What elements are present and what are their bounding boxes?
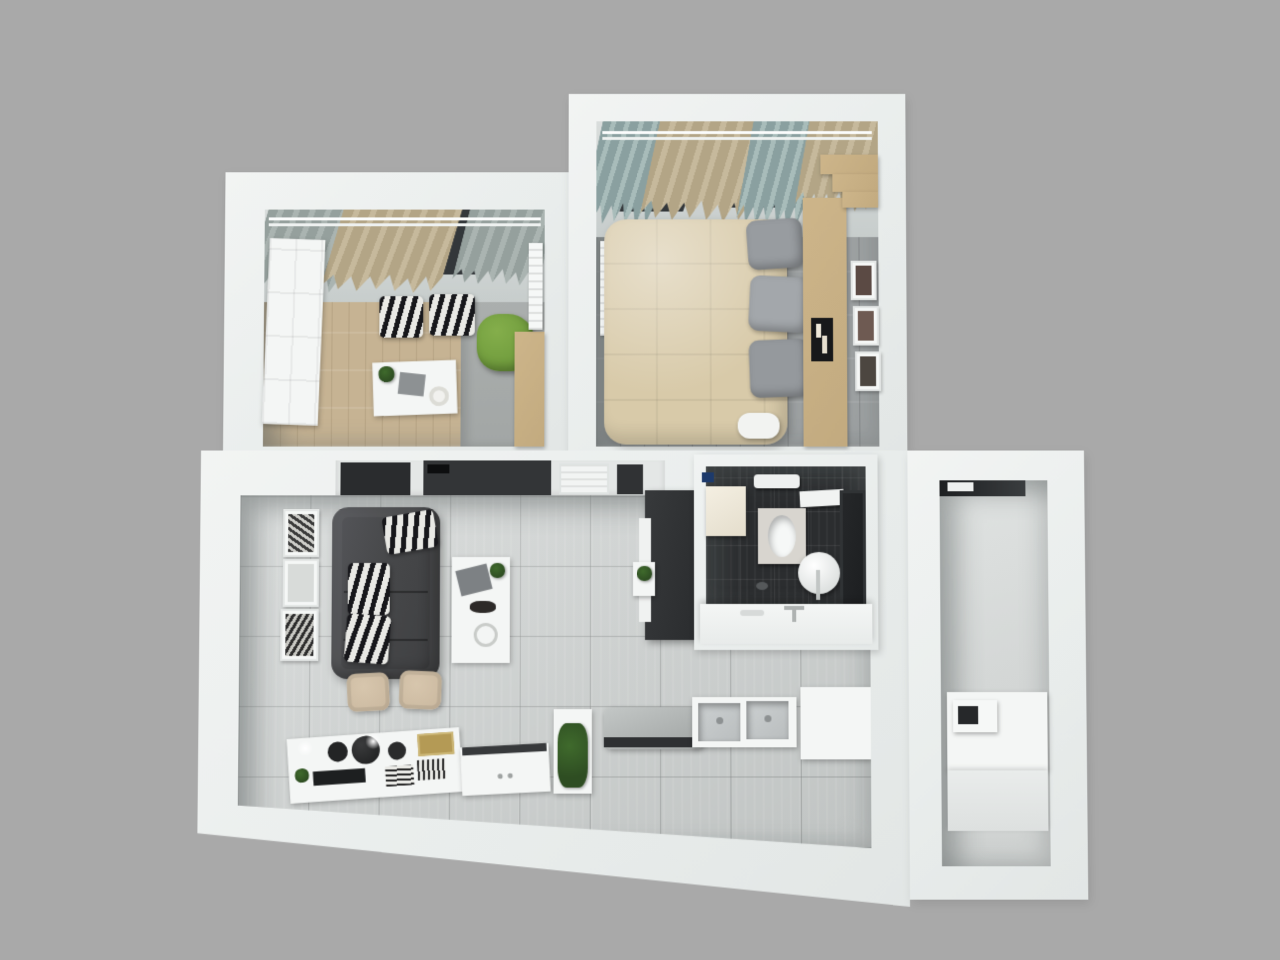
cooktop-dark-base (604, 737, 704, 747)
gold-decor-board (417, 732, 455, 757)
air-vent (559, 463, 609, 494)
picture-frame (851, 261, 877, 300)
bathroom-block (694, 455, 879, 650)
picture-frame (283, 509, 319, 557)
sofa (331, 507, 440, 679)
gray-pillow (748, 275, 810, 333)
counter-plant (558, 723, 588, 787)
toilet-base (758, 508, 806, 564)
gray-pillow (748, 339, 810, 398)
white-pillow (738, 413, 780, 439)
balcony-step (947, 770, 1048, 830)
tv-panel-wall (335, 460, 665, 498)
stepped-wardrobe (842, 192, 878, 208)
dining-chair (346, 672, 390, 712)
apartment-scene (0, 8, 1280, 960)
dark-tray (313, 768, 366, 786)
picture-frame (853, 306, 879, 345)
bedroom-block (568, 94, 907, 456)
shelf-plant (637, 566, 652, 581)
picture-frame (283, 559, 319, 607)
cup (474, 623, 498, 647)
floor-drain (756, 582, 768, 590)
soap-tray (740, 610, 764, 616)
vanity-counter (700, 604, 872, 644)
drain-tray (460, 743, 551, 796)
candle (816, 324, 821, 338)
blue-box (702, 472, 714, 482)
open-door-leaf (262, 238, 326, 425)
study-room-floor (263, 210, 545, 447)
drain-hole (498, 774, 503, 779)
sink-unit (692, 697, 796, 747)
balcony-floor (939, 480, 1050, 866)
living-block (197, 451, 910, 907)
curtain-rail (602, 131, 871, 134)
dark-wall-panel (340, 462, 410, 496)
balcony-counter (947, 692, 1048, 770)
black-bowl (387, 741, 406, 760)
zebra-cushion (344, 613, 392, 664)
sink-drain (716, 717, 723, 724)
towel-rail (754, 474, 800, 488)
cooktop (604, 707, 704, 749)
tv-screen (427, 464, 449, 473)
media-cabinet (645, 490, 699, 640)
vanity-faucet-stem (792, 606, 796, 622)
wood-wardrobe (514, 332, 544, 447)
sink-drain (764, 715, 771, 722)
pedestal-sink (798, 552, 840, 594)
desk-plant (378, 366, 394, 382)
stepped-wardrobe (832, 174, 878, 192)
frame-art (860, 356, 876, 386)
patterned-mat (417, 758, 446, 780)
toilet-bowl (768, 515, 796, 557)
bathroom-dark-door (840, 490, 867, 608)
wood-headboard-console (803, 198, 848, 447)
kitchen-peninsula (800, 687, 871, 759)
window-vent (947, 482, 973, 491)
bedroom-floor (596, 121, 879, 446)
dining-chair (399, 670, 443, 710)
balcony-block (907, 451, 1088, 900)
frame-art (285, 614, 313, 656)
gray-pillow (746, 218, 805, 271)
curtain-rail (269, 217, 541, 220)
study-room-block (223, 172, 569, 468)
patterned-mat (385, 765, 414, 787)
tray-dark-edge (462, 743, 547, 755)
frame-art (858, 311, 874, 341)
zebra-cushion (348, 563, 390, 615)
frame-art (288, 514, 314, 552)
wall-radiator (529, 243, 543, 330)
dark-wall-panel (617, 464, 643, 494)
floorplan-canvas (0, 0, 1280, 960)
desk-hat (429, 386, 450, 406)
picture-frame (855, 351, 881, 391)
sink-faucet (816, 570, 820, 600)
decor-console (287, 727, 464, 803)
frame-art (288, 564, 314, 602)
picture-frame (280, 609, 318, 661)
snack-bowl (470, 601, 496, 613)
console-plant (294, 768, 309, 783)
table-mat (455, 564, 492, 597)
zebra-cushion (381, 509, 439, 555)
desk-mat (398, 372, 426, 396)
spot-light-glow (297, 740, 314, 757)
washing-machine (706, 486, 746, 536)
candle (822, 336, 827, 354)
zebra-ottoman (429, 294, 475, 335)
stepped-wardrobe (820, 155, 878, 175)
table-plant (490, 563, 505, 578)
bathroom-floor (706, 466, 866, 614)
zebra-ottoman (379, 296, 423, 337)
white-desk (372, 360, 457, 416)
microwave (953, 700, 997, 732)
black-bowl (327, 741, 348, 762)
drain-hole (508, 773, 513, 778)
frame-art (856, 266, 872, 296)
wall-shelf (799, 489, 844, 507)
coffee-table (452, 557, 510, 663)
microwave-window (958, 706, 978, 724)
